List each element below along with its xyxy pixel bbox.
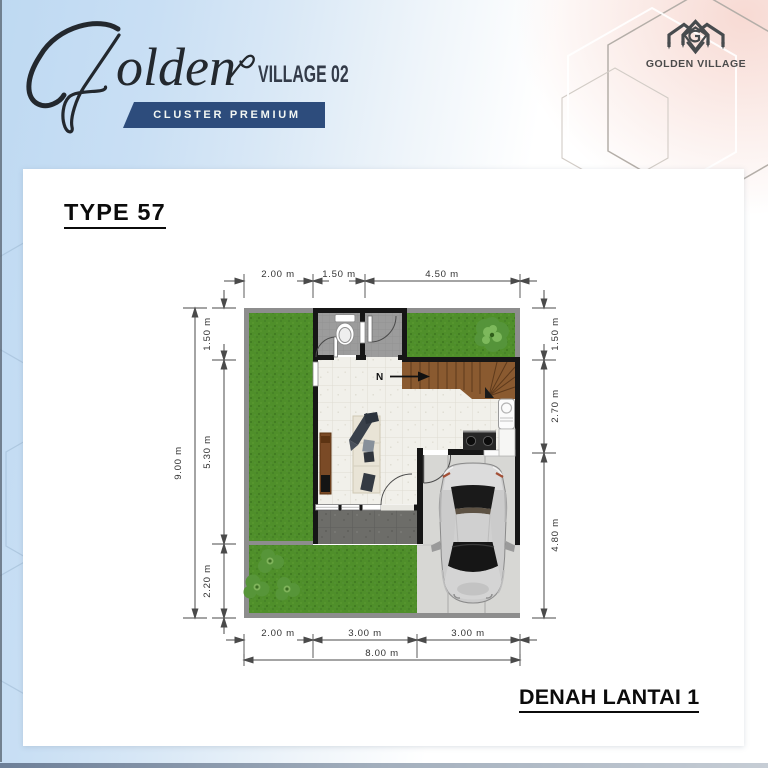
svg-text:2.20 m: 2.20 m [202,564,213,598]
svg-text:2.00 m: 2.00 m [261,628,295,639]
svg-text:2.00 m: 2.00 m [261,269,295,280]
svg-text:9.00 m: 9.00 m [173,446,184,480]
svg-text:1.50 m: 1.50 m [550,317,561,351]
svg-text:2.70 m: 2.70 m [550,389,561,423]
svg-text:1.50 m: 1.50 m [322,269,356,280]
svg-text:4.80 m: 4.80 m [550,518,561,552]
svg-text:4.50 m: 4.50 m [425,269,459,280]
svg-text:3.00 m: 3.00 m [348,628,382,639]
svg-text:1.50 m: 1.50 m [202,317,213,351]
svg-text:N: N [376,372,383,383]
svg-text:5.30 m: 5.30 m [202,435,213,469]
svg-text:8.00 m: 8.00 m [365,648,399,659]
svg-text:3.00 m: 3.00 m [451,628,485,639]
